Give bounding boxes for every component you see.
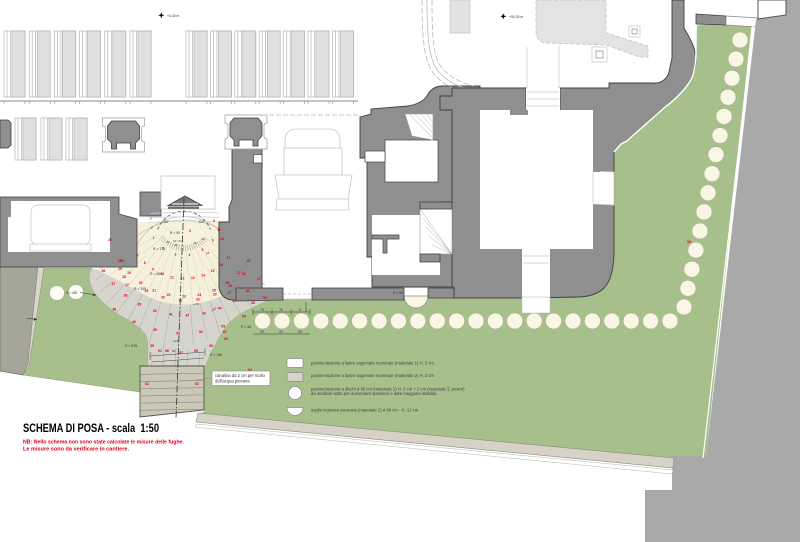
svg-text:45: 45	[193, 241, 197, 245]
svg-text:7: 7	[137, 253, 139, 257]
svg-text:R = 345: R = 345	[134, 287, 146, 291]
svg-text:R = 30: R = 30	[241, 325, 251, 329]
svg-text:+50,30 m: +50,30 m	[509, 15, 523, 19]
svg-text:19: 19	[127, 271, 131, 275]
svg-text:20: 20	[139, 281, 143, 285]
svg-text:R = 175: R = 175	[153, 247, 165, 251]
svg-text:53: 53	[221, 325, 225, 329]
svg-text:75: 75	[279, 308, 283, 312]
svg-text:+2%: +2%	[173, 339, 179, 343]
svg-text:54: 54	[242, 314, 246, 318]
svg-text:52: 52	[199, 330, 203, 334]
svg-text:5: 5	[299, 308, 301, 312]
svg-text:36: 36	[102, 269, 106, 273]
svg-text:18: 18	[122, 275, 126, 279]
svg-text:5: 5	[213, 219, 215, 223]
svg-text:R = 60: R = 60	[393, 291, 403, 295]
svg-text:43: 43	[202, 311, 206, 315]
svg-text:21: 21	[152, 288, 156, 292]
svg-text:48: 48	[113, 308, 117, 312]
svg-text:+4,30 m: +4,30 m	[167, 14, 180, 18]
svg-text:9: 9	[152, 268, 154, 272]
svg-text:Le misure sono da verificare i: Le misure sono da verificare in cantiere…	[23, 447, 130, 453]
svg-text:62: 62	[195, 382, 199, 386]
svg-text:30: 30	[260, 330, 264, 334]
svg-text:5: 5	[202, 248, 204, 252]
svg-text:3: 3	[189, 229, 191, 233]
svg-text:14: 14	[201, 273, 205, 277]
svg-text:43: 43	[201, 237, 205, 241]
svg-text:7: 7	[150, 217, 152, 221]
svg-text:61: 61	[158, 349, 162, 353]
svg-text:16: 16	[219, 263, 223, 267]
svg-text:NB: Nello schema non sono stat: NB: Nello schema non sono state calcolat…	[23, 440, 185, 446]
svg-text:da incollare sotto per aumenta: da incollare sotto per aumentare spessor…	[311, 391, 437, 396]
svg-text:dell'acqua piovana: dell'acqua piovana	[215, 379, 250, 384]
svg-text:40: 40	[153, 309, 157, 313]
svg-text:17: 17	[227, 256, 231, 260]
svg-text:16: 16	[220, 237, 224, 241]
svg-text:59: 59	[263, 296, 267, 300]
svg-text:58: 58	[251, 301, 255, 305]
svg-text:30: 30	[298, 330, 302, 334]
svg-text:10: 10	[217, 228, 221, 232]
svg-text:soglia ingresso sacrestia (mat: soglia ingresso sacrestia (materiale 1) …	[311, 408, 419, 413]
svg-text:60: 60	[279, 330, 283, 334]
svg-text:22: 22	[167, 293, 171, 297]
svg-text:canalina da 2 cm per scolo: canalina da 2 cm per scolo	[215, 373, 265, 378]
svg-text:R = 185: R = 185	[210, 353, 222, 357]
svg-text:45: 45	[232, 299, 236, 303]
svg-text:55: 55	[150, 344, 154, 348]
svg-text:42: 42	[185, 313, 189, 317]
svg-text:43: 43	[166, 240, 170, 244]
svg-text:≈90°: ≈90°	[163, 220, 171, 224]
svg-text:26: 26	[108, 238, 112, 242]
svg-text:15: 15	[211, 269, 215, 273]
svg-text:51: 51	[176, 331, 180, 335]
svg-text:49: 49	[132, 320, 136, 324]
svg-text:4: 4	[189, 253, 191, 257]
svg-text:7: 7	[151, 226, 153, 230]
svg-text:34: 34	[228, 284, 232, 288]
svg-text:37: 37	[112, 282, 116, 286]
svg-text:24: 24	[197, 293, 201, 297]
svg-text:20: 20	[120, 259, 124, 263]
svg-text:+2%: +2%	[193, 302, 199, 306]
svg-text:56: 56	[165, 349, 169, 353]
svg-text:75: 75	[260, 308, 264, 312]
svg-text:59: 59	[209, 344, 213, 348]
svg-text:R = 430: R = 430	[66, 291, 77, 295]
svg-text:6: 6	[212, 239, 214, 243]
svg-text:17: 17	[125, 283, 129, 287]
svg-text:67: 67	[223, 330, 227, 334]
svg-text:57: 57	[179, 351, 183, 355]
svg-text:61: 61	[145, 382, 149, 386]
svg-text:19: 19	[118, 267, 122, 271]
svg-text:11: 11	[170, 275, 174, 279]
svg-text:3: 3	[175, 253, 177, 257]
svg-text:23: 23	[182, 295, 186, 299]
svg-text:1: 1	[153, 236, 155, 240]
svg-text:50: 50	[172, 349, 176, 353]
svg-text:39: 39	[138, 302, 142, 306]
svg-text:32: 32	[196, 297, 200, 301]
svg-text:46: 46	[246, 289, 250, 293]
svg-text:21°-21°: 21°-21°	[173, 239, 184, 243]
svg-text:50: 50	[154, 328, 158, 332]
svg-text:R = 575: R = 575	[125, 344, 137, 348]
svg-text:35: 35	[242, 272, 246, 276]
svg-text:30: 30	[161, 296, 165, 300]
svg-text:38: 38	[124, 293, 128, 297]
svg-text:47: 47	[257, 277, 261, 281]
svg-text:12: 12	[181, 277, 185, 281]
svg-text:SCHEMA DI POSA - scala 1:50: SCHEMA DI POSA - scala 1:50	[23, 421, 159, 435]
svg-text:R = 90: R = 90	[170, 231, 180, 235]
svg-text:R = 260: R = 260	[150, 272, 162, 276]
svg-text:33: 33	[213, 292, 217, 296]
svg-text:pavimentazione a lastre sagoma: pavimentazione a lastre sagomate numerat…	[311, 361, 434, 366]
svg-text:41: 41	[169, 313, 173, 317]
svg-text:60: 60	[224, 337, 228, 341]
svg-text:31: 31	[178, 298, 182, 302]
svg-text:120: 120	[198, 220, 204, 224]
svg-text:45: 45	[174, 243, 178, 247]
svg-text:13: 13	[191, 276, 195, 280]
svg-text:28: 28	[247, 259, 251, 263]
svg-text:pavimentazione a lastre sagoma: pavimentazione a lastre sagomate numerat…	[311, 373, 434, 378]
svg-text:8: 8	[144, 261, 146, 265]
svg-text:54: 54	[687, 240, 691, 244]
svg-text:27: 27	[237, 271, 241, 275]
